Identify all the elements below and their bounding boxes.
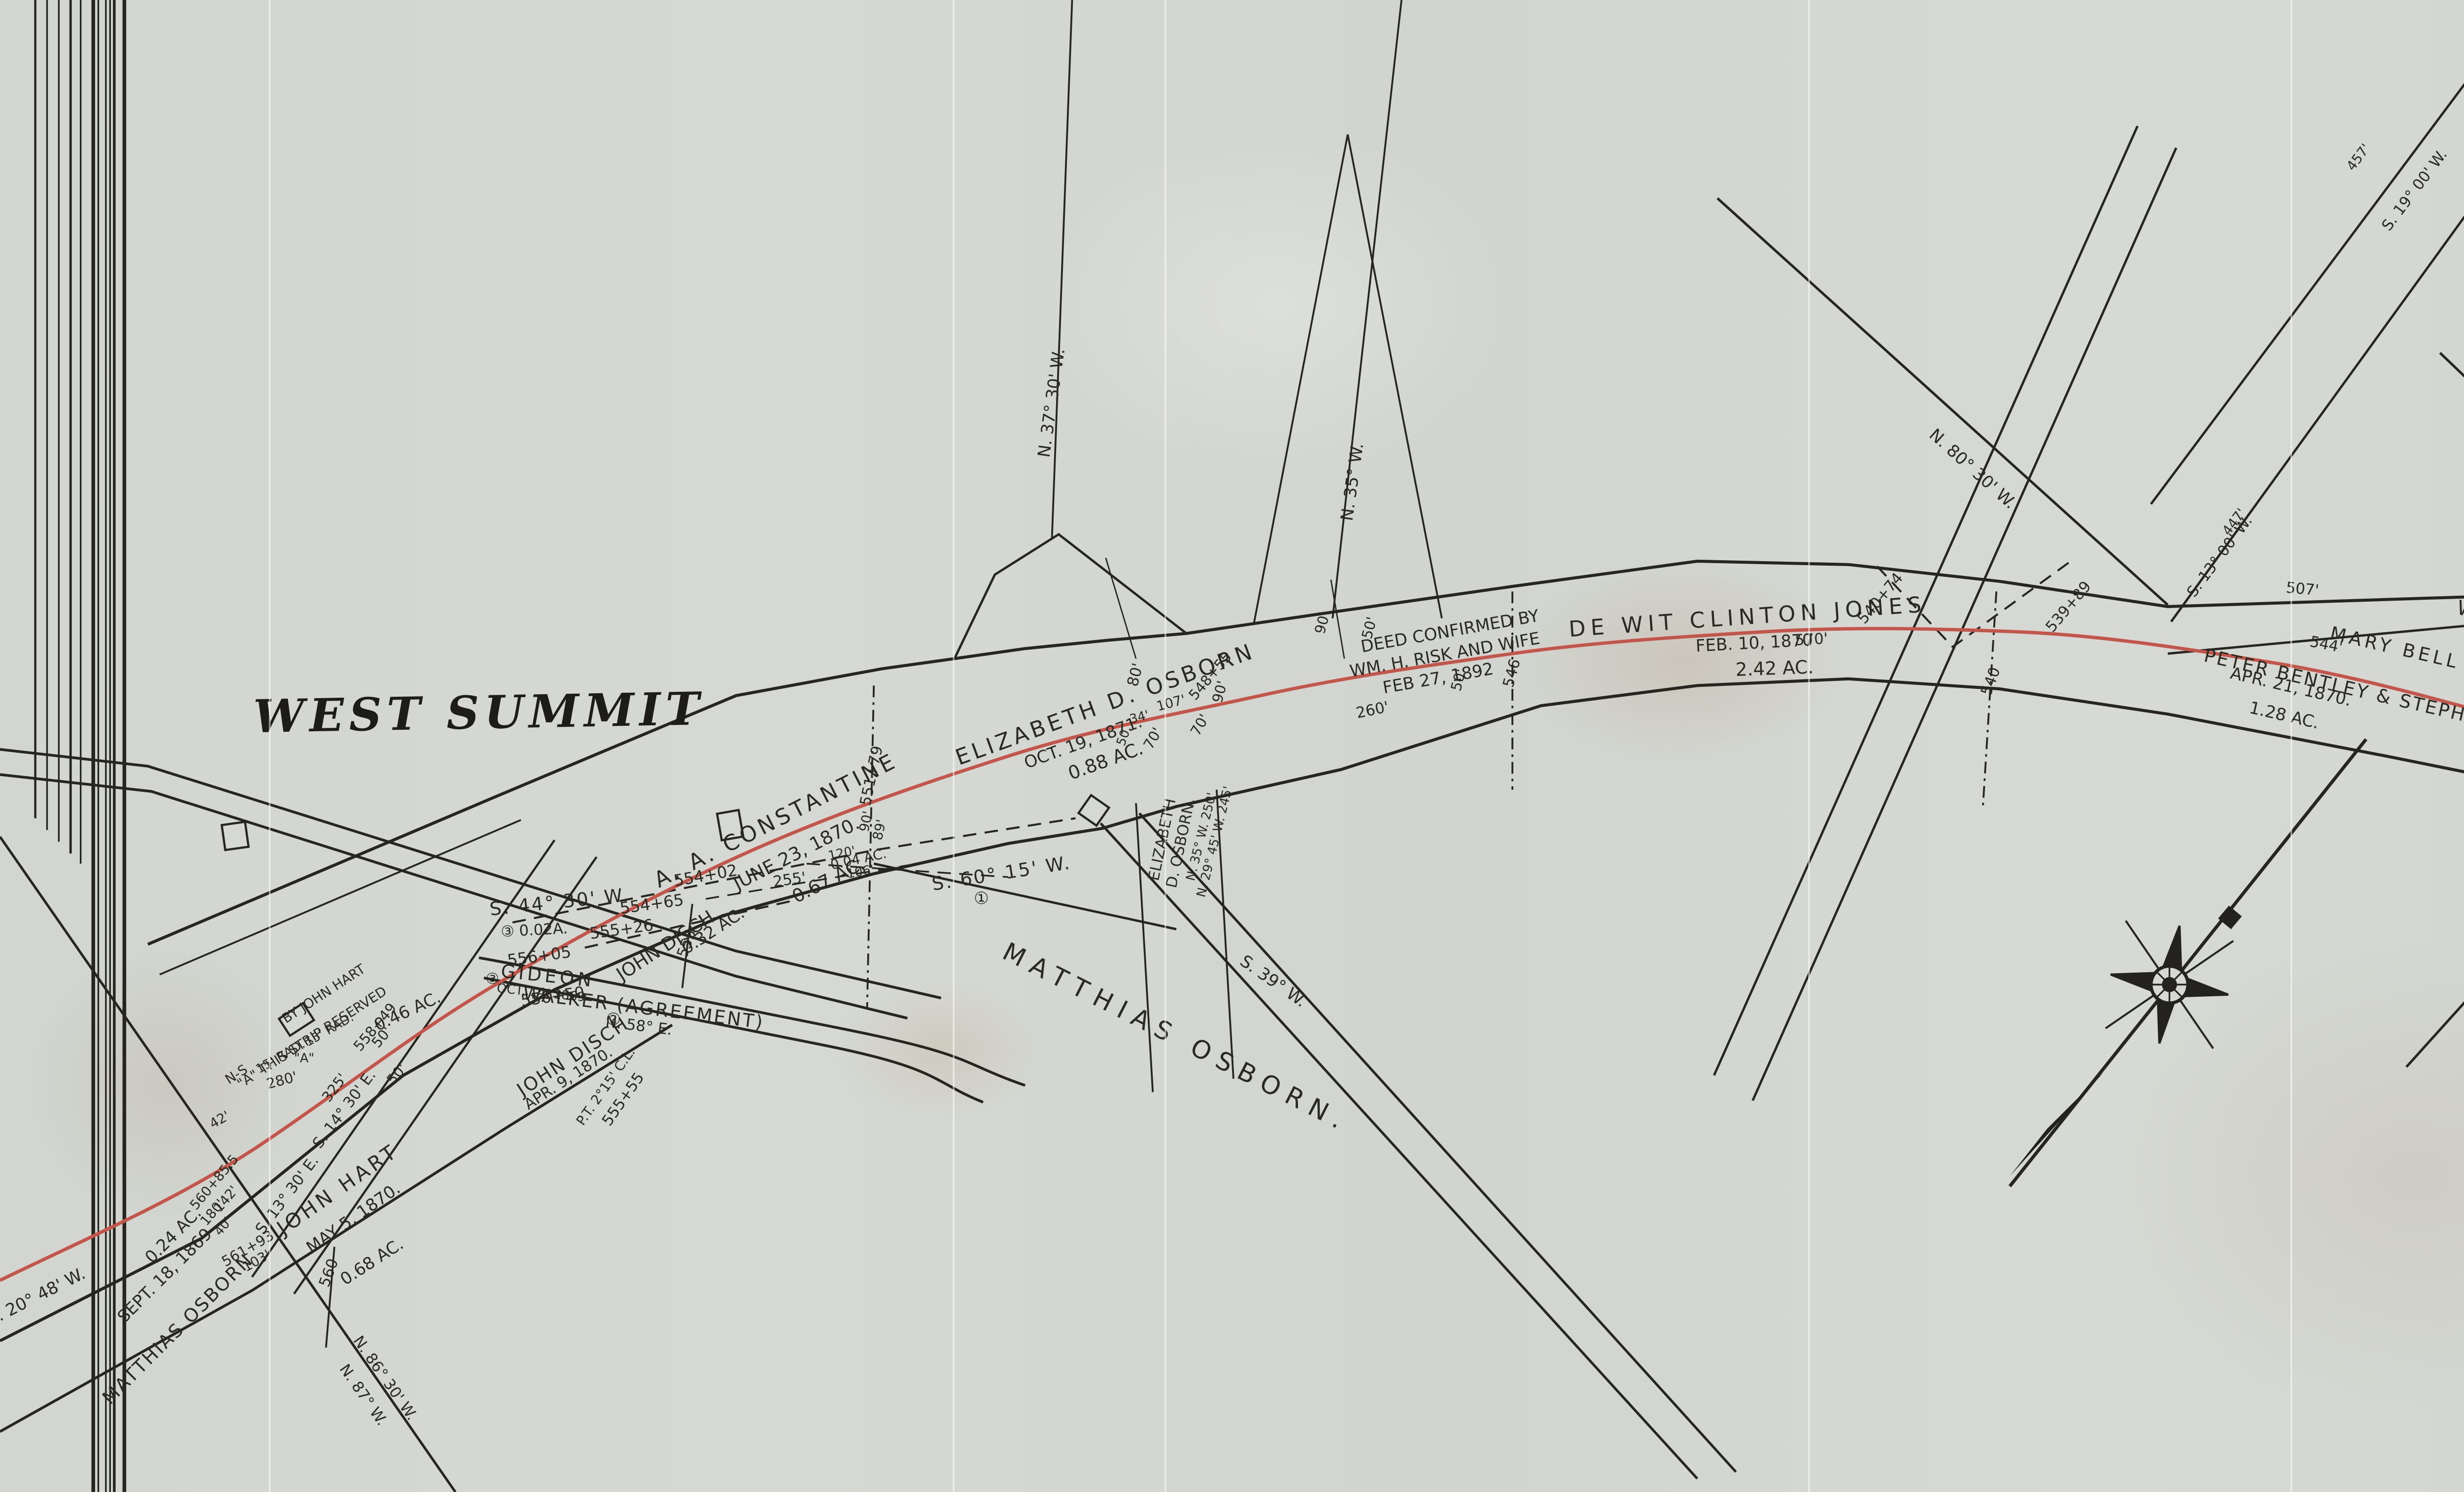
label-bearing-n35w: N. 35° W. [1341,442,1369,522]
label-jones-length: 570' [1795,634,1829,650]
label-bearing-s4430w: S. 44° 30' W. [489,886,630,919]
label-bearing-s2048w: S. 20° 48' W. [0,1267,89,1331]
label-dim-70a: 70' [1143,726,1166,752]
fold-line [2291,0,2292,1492]
map-labels: WEST SUMMITA. A. CONSTANTINEJUNE 23, 187… [0,0,2464,1492]
label-dim-34: 34' [1129,709,1151,726]
label-bearing-n3730w: N. 37° 30' W. [1038,348,1070,459]
fold-line [1808,0,1810,1492]
label-parcel-ref-1: ① [974,892,989,909]
label-bearing-s6015w: S. 60° 15' W. [931,853,1072,894]
label-jones-area: 2.42 AC. [1735,658,1814,679]
label-bell-length: 544' [2308,636,2344,657]
label-station-546: 546 [1503,658,1525,690]
label-dim-89: 89' [872,818,889,842]
label-station-540: 540 [1981,666,2005,699]
label-hart-area: 0.68 AC. [339,1237,407,1290]
label-parcel-ref-3a: ③ 0.02A. [501,923,568,942]
label-parcel-ref-3b: ③ [485,974,499,989]
survey-map-sheet: WEST SUMMITA. A. CONSTANTINEJUNE 23, 187… [0,0,2464,1492]
label-dim-50e: 50' [386,1062,411,1088]
label-bearing-s39w: S. 39° W. [1236,954,1308,1012]
label-dim-90b: 90' [1212,680,1232,705]
label-dim-70b: 70' [1190,712,1213,739]
label-deed-length: 260' [1355,702,1391,723]
label-dim-106: 106' [846,863,875,881]
fold-line [269,0,271,1492]
label-dim-50b: 50' [1450,668,1470,693]
label-dim-90a: 90' [1314,611,1334,636]
fold-line [953,0,954,1492]
label-osborn-c-name: MATTHIAS OSBORN. [998,940,1354,1138]
label-bearing-s1900w: S. 19° 00' W. [2381,148,2452,235]
label-map-title: WEST SUMMIT [253,687,705,741]
label-station-555-26: 555+26 [589,918,654,943]
fold-line [1164,0,1166,1492]
label-dim-457: 457' [2345,142,2374,174]
label-dim-42: 42' [208,1110,233,1132]
label-bentley-area: 1.28 AC. [2247,701,2320,734]
label-stiger-name: WM. E. STIGER [2455,597,2464,652]
label-bearing-n8030w: N. 80° 30' W. [1925,428,2018,513]
label-station-539-89: 539+89 [2045,580,2096,636]
